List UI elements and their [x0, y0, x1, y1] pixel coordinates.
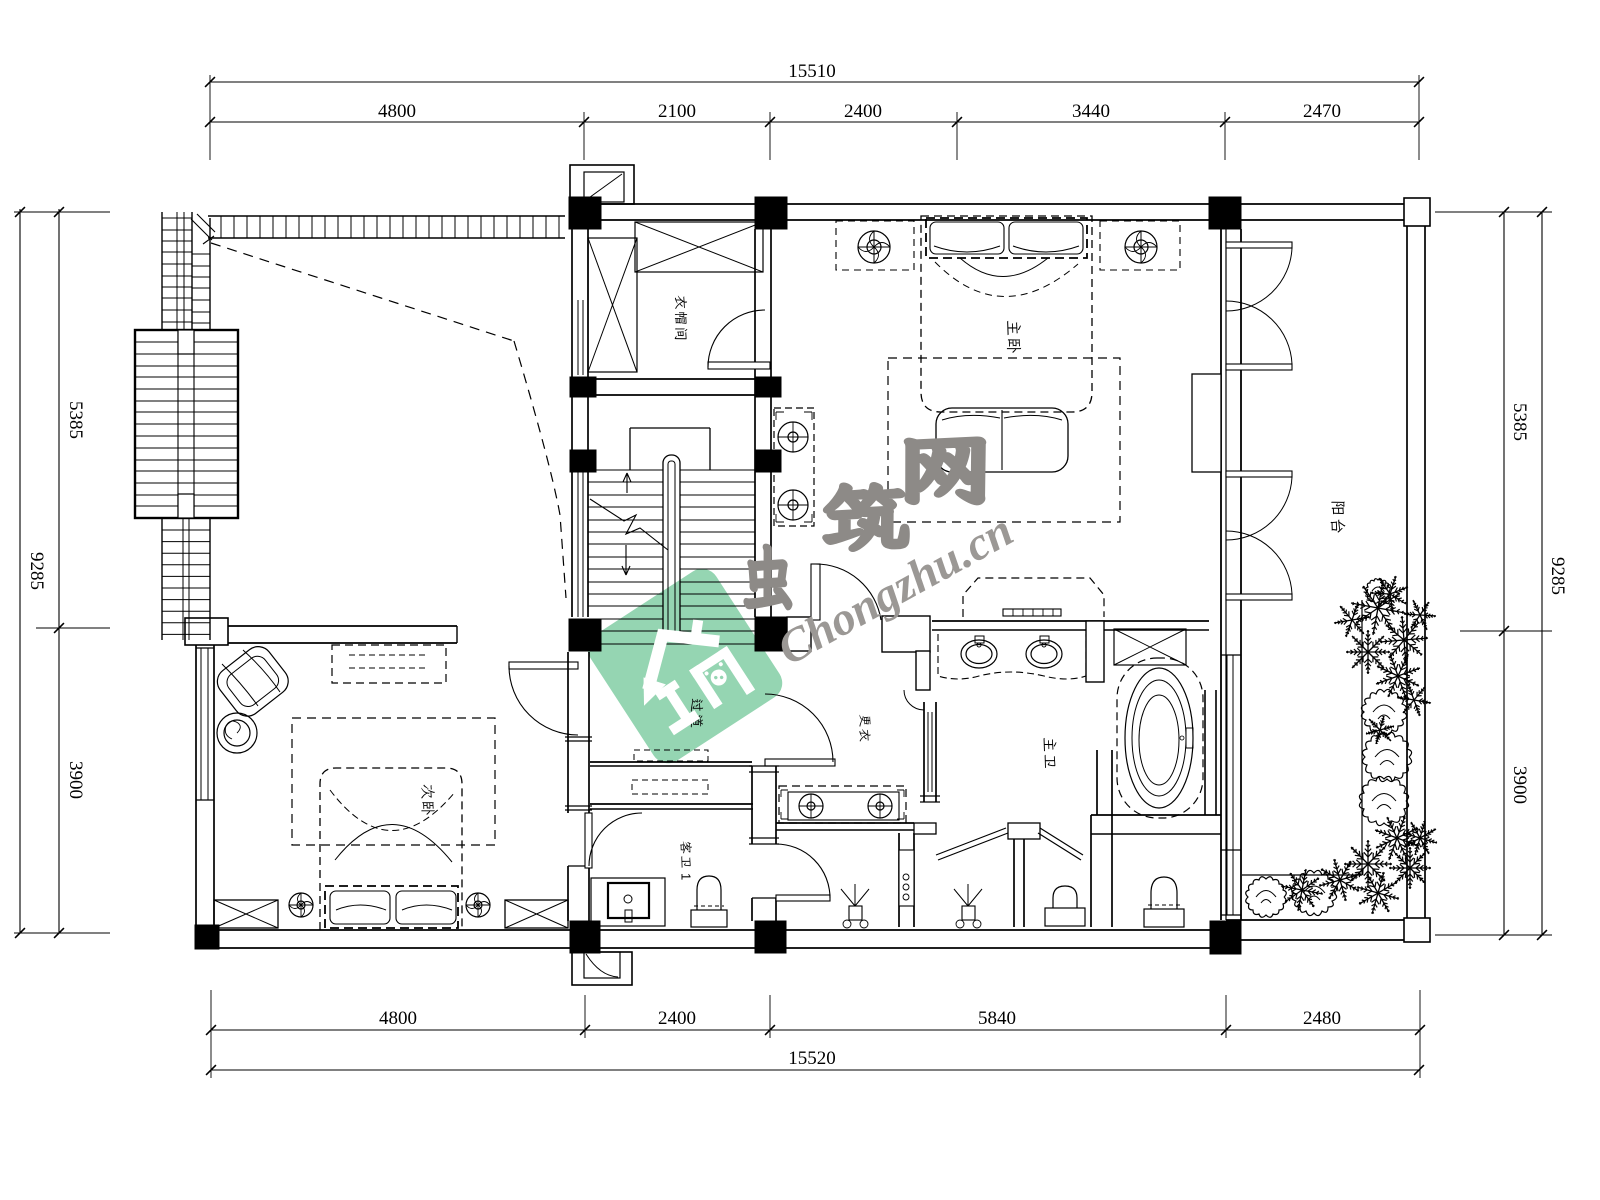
svg-text:3900: 3900 — [1509, 766, 1530, 804]
svg-text:2480: 2480 — [1303, 1008, 1341, 1029]
svg-text:5385: 5385 — [65, 401, 86, 439]
svg-text:5840: 5840 — [978, 1008, 1016, 1029]
svg-text:5385: 5385 — [1509, 403, 1530, 441]
svg-text:1: 1 — [679, 873, 694, 880]
svg-text:9285: 9285 — [26, 552, 47, 590]
svg-text:3900: 3900 — [65, 761, 86, 799]
svg-text:15520: 15520 — [788, 1048, 836, 1069]
svg-text:2470: 2470 — [1303, 101, 1341, 122]
svg-text:3440: 3440 — [1072, 101, 1110, 122]
svg-text:2400: 2400 — [844, 101, 882, 122]
svg-text:9285: 9285 — [1547, 557, 1568, 595]
svg-text:4800: 4800 — [379, 1008, 417, 1029]
svg-text:4800: 4800 — [378, 101, 416, 122]
svg-text:2100: 2100 — [658, 101, 696, 122]
svg-text:15510: 15510 — [788, 61, 836, 82]
svg-text:2400: 2400 — [658, 1008, 696, 1029]
